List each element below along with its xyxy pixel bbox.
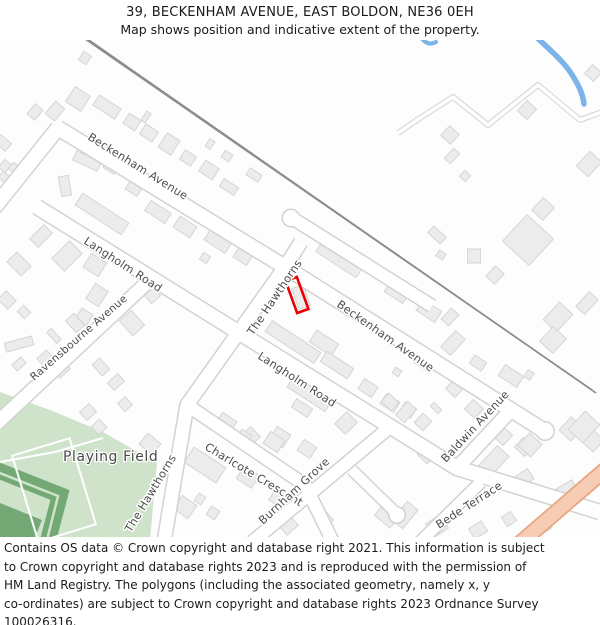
copyright-line: HM Land Registry. The polygons (includin…: [4, 576, 600, 595]
zigzag-footpath: [398, 85, 600, 133]
page: 39, BECKENHAM AVENUE, EAST BOLDON, NE36 …: [0, 0, 600, 625]
map: Beckenham Avenue Beckenham Avenue Langho…: [0, 40, 600, 537]
map-canvas: Beckenham Avenue Beckenham Avenue Langho…: [0, 40, 600, 537]
area-label-playing-field: Playing Field: [63, 449, 158, 465]
header: 39, BECKENHAM AVENUE, EAST BOLDON, NE36 …: [0, 0, 600, 40]
page-subtitle: Map shows position and indicative extent…: [0, 20, 600, 37]
stream-arc: [420, 40, 436, 44]
copyright-line: 100026316.: [4, 613, 600, 625]
copyright-line: Contains OS data © Crown copyright and d…: [4, 539, 600, 558]
copyright-line: to Crown copyright and database rights 2…: [4, 558, 600, 577]
copyright-line: co-ordinates) are subject to Crown copyr…: [4, 595, 600, 614]
stream: [533, 40, 584, 104]
page-title: 39, BECKENHAM AVENUE, EAST BOLDON, NE36 …: [0, 0, 600, 20]
copyright-notice: Contains OS data © Crown copyright and d…: [0, 537, 600, 625]
street-label-ravensbourne-avenue: Ravensbourne Avenue: [28, 293, 130, 384]
